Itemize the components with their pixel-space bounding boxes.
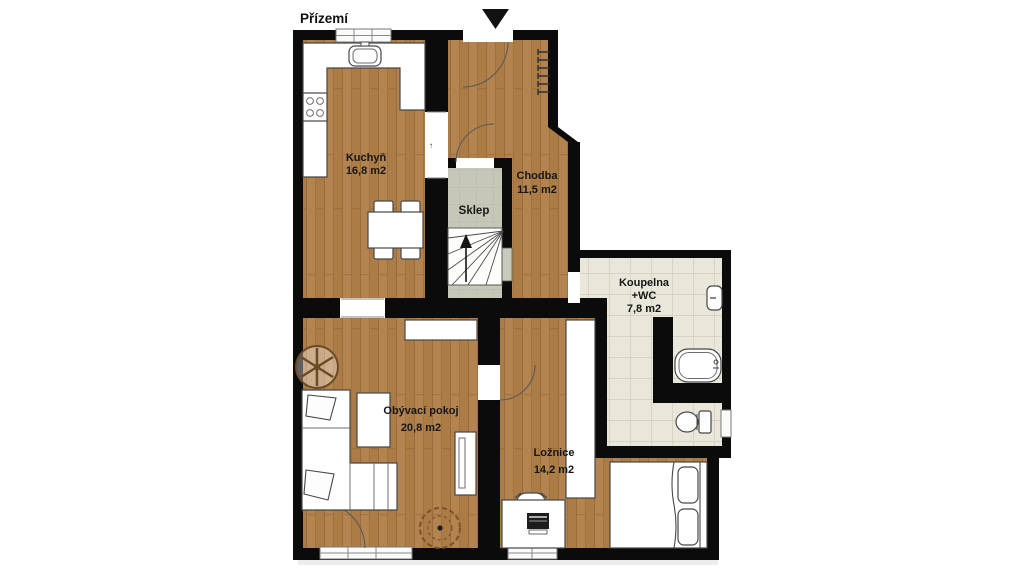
cellar-stairs: [448, 228, 503, 285]
bathroom-area: 7,8 m2: [627, 303, 661, 315]
sofa-pillow: [306, 395, 336, 420]
stove-icon: [303, 93, 327, 121]
bedroom-door: [478, 365, 500, 400]
bedroom-label: Ložnice: [534, 447, 575, 459]
kitchen-area: 16,8 m2: [346, 165, 386, 177]
hallway-label: Chodba: [517, 170, 559, 182]
coffee-table: [357, 393, 390, 447]
floor-plan-drawing: ↑: [0, 0, 1024, 576]
floor-title: Přízemí: [300, 11, 349, 26]
bathroom-label: Koupelna: [619, 277, 670, 289]
bed-pillow: [678, 467, 698, 503]
cellar-label: Sklep: [459, 205, 490, 217]
bathroom-sink-icon: [707, 286, 722, 310]
kitchen-label: Kuchyň: [346, 152, 387, 164]
hallway-area: 11,5 m2: [517, 184, 557, 196]
bedroom-area: 14,2 m2: [534, 464, 574, 476]
toilet-icon: [676, 411, 711, 433]
bathtub-icon: [675, 349, 721, 382]
kitchen-sink-icon: [349, 42, 381, 66]
floor-plan-canvas: ↑: [0, 0, 1024, 576]
sideboard: [405, 320, 477, 340]
bathroom-window: [721, 410, 731, 437]
entrance-arrow-icon: [482, 9, 509, 29]
ceiling-fan-icon: [296, 346, 338, 388]
bathroom-sublabel: +WC: [632, 290, 657, 302]
kitchen-living-passage: [340, 298, 385, 318]
bathroom-door: [568, 272, 580, 303]
laptop-icon: [527, 513, 549, 534]
desk-area: [502, 493, 565, 548]
living-room-area: 20,8 m2: [401, 422, 441, 434]
cellar-door: [456, 158, 494, 168]
bed: [610, 462, 707, 548]
living-room-label: Obývací pokoj: [383, 405, 458, 417]
tv-board: [455, 432, 476, 495]
stairs-side-door: [502, 248, 512, 281]
kitchen-door-marker: ↑: [429, 141, 433, 150]
bed-pillow: [678, 509, 698, 545]
entrance-door: [463, 29, 513, 42]
sofa-pillow: [304, 470, 334, 500]
